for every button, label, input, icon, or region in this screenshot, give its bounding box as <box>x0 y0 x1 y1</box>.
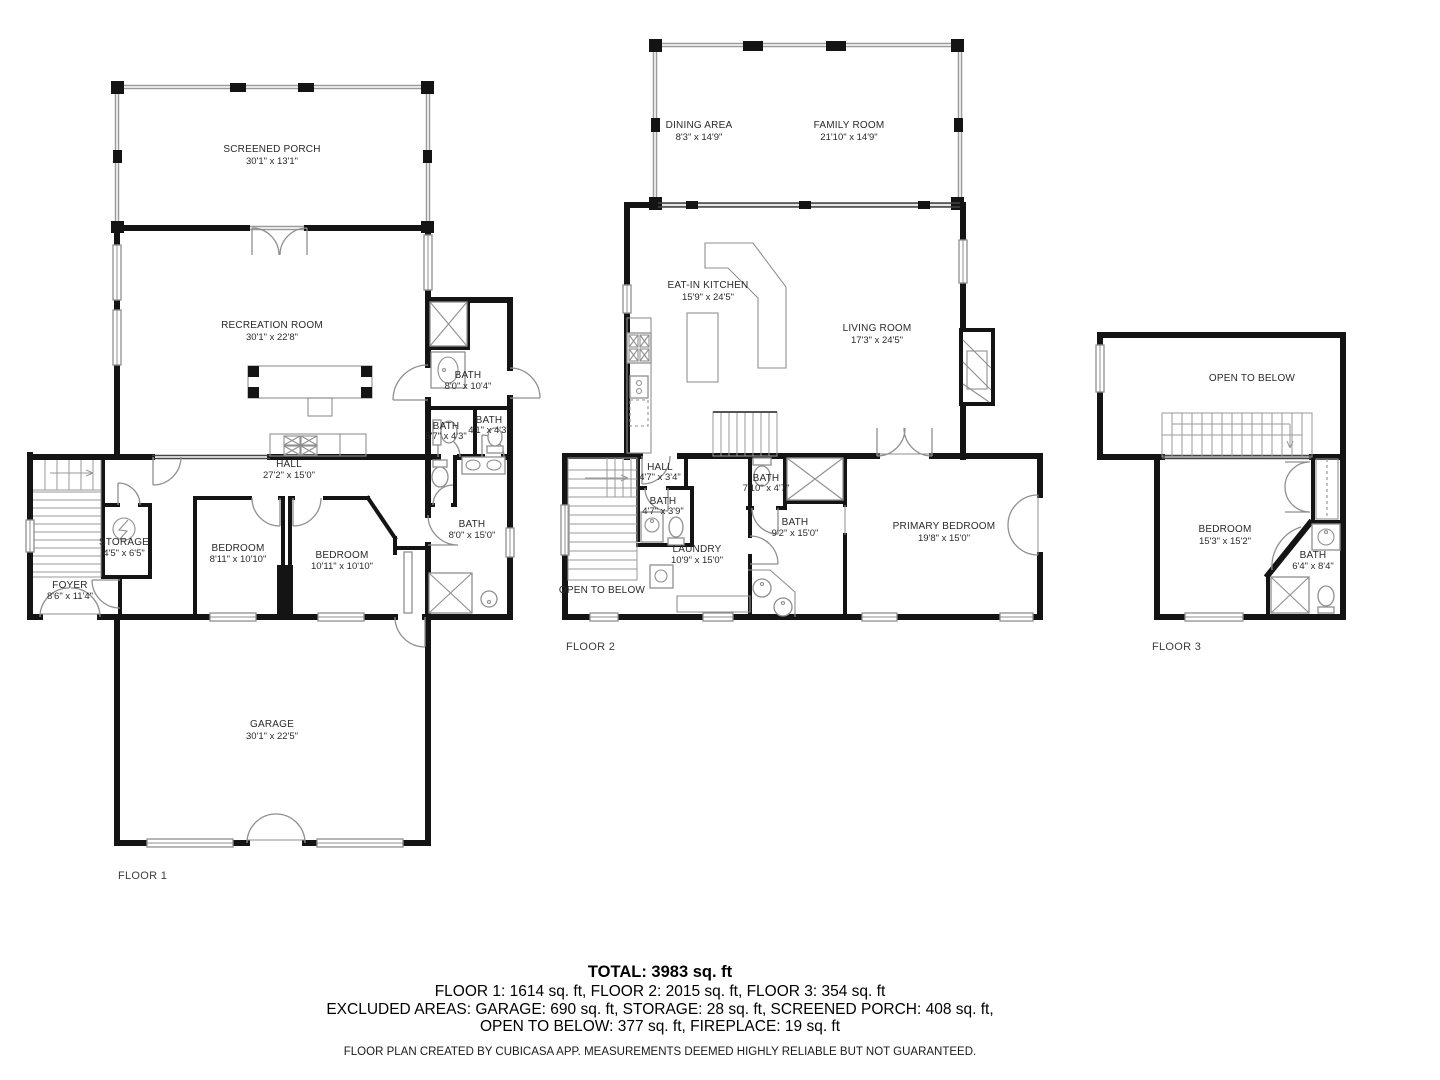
room-label-bath-large-f2: BATH <box>782 517 809 528</box>
room-label-open-to-below-f2: OPEN TO BELOW <box>559 585 646 596</box>
room-label-foyer: FOYER <box>52 580 87 591</box>
floor3-label: FLOOR 3 <box>1152 641 1201 653</box>
room-dims-bath-large-f2: 9'2" x 15'0" <box>772 528 819 539</box>
room-dims-bath-small-right: 4'1" x 4'3" <box>468 425 510 436</box>
room-label-garage: GARAGE <box>250 719 294 730</box>
room-dims-family-room: 21'10" x 14'9" <box>820 132 877 143</box>
closet-sliding-door <box>404 552 412 613</box>
room-dims-hall-f2: 4'7" x 3'4" <box>639 472 681 483</box>
room-label-bath-lower: BATH <box>459 519 486 530</box>
room-dims-living-room: 17'3" x 24'5" <box>851 335 903 346</box>
pool-table <box>248 366 372 398</box>
room-dims-bedroom-left: 8'11" x 10'10" <box>210 554 267 565</box>
sink-icon <box>774 598 792 616</box>
floor3-stairs <box>1162 413 1312 457</box>
floor1-label: FLOOR 1 <box>118 870 167 882</box>
room-dims-bath-small-left: 5'7" x 4'3" <box>425 431 467 442</box>
room-label-bath-upper: BATH <box>455 370 482 381</box>
room-dims-bath-hall-f2: 4'7" x 3'9" <box>642 506 684 517</box>
dishwasher-icon <box>630 400 648 426</box>
foyer-stairs <box>33 460 101 577</box>
sink-icon <box>481 591 497 607</box>
room-label-primary-bedroom: PRIMARY BEDROOM <box>893 521 996 532</box>
fireplace-icon <box>961 330 993 404</box>
room-label-storage: STORAGE <box>99 537 149 548</box>
room-dims-eat-in-kitchen: 15'9" x 24'5" <box>682 292 734 303</box>
summary-excluded-2: OPEN TO BELOW: 377 sq. ft, FIREPLACE: 19… <box>480 1018 841 1035</box>
room-dims-hall-f1: 27'2" x 15'0" <box>263 470 315 481</box>
room-label-bath-f3: BATH <box>1300 550 1327 561</box>
room-label-laundry: LAUNDRY <box>672 544 721 555</box>
room-dims-dining-area: 8'3" x 14'9" <box>676 132 723 143</box>
room-dims-primary-bedroom: 19'8" x 15'0" <box>918 533 970 544</box>
summary-block: TOTAL: 3983 sq. ft FLOOR 1: 1614 sq. ft,… <box>326 963 993 1058</box>
room-dims-foyer: 8'6" x 11'4" <box>47 591 93 602</box>
summary-disclaimer: FLOOR PLAN CREATED BY CUBICASA APP. MEAS… <box>344 1046 976 1058</box>
room-dims-bath-small-f2: 7'10" x 4'7" <box>743 483 790 494</box>
summary-excluded-1: EXCLUDED AREAS: GARAGE: 690 sq. ft, STOR… <box>326 1001 993 1018</box>
room-label-dining-area: DINING AREA <box>666 120 733 131</box>
toilet-icon <box>753 458 771 465</box>
toilet-icon <box>487 446 503 453</box>
sink-icon <box>753 579 771 597</box>
room-dims-storage: 4'5" x 6'5" <box>103 548 145 559</box>
room-dims-recreation-room: 30'1" x 22'8" <box>246 332 298 343</box>
room-dims-bath-f3: 6'4" x 8'4" <box>1292 561 1334 572</box>
room-dims-laundry: 10'9" x 15'0" <box>671 555 723 566</box>
room-label-bedroom-right: BEDROOM <box>315 550 368 561</box>
summary-total: TOTAL: 3983 sq. ft <box>588 963 733 981</box>
floor2-stairs-open-below <box>568 458 637 580</box>
room-label-open-to-below-f3: OPEN TO BELOW <box>1209 373 1296 384</box>
kitchen-island <box>687 313 718 382</box>
room-label-screened-porch: SCREENED PORCH <box>223 144 320 155</box>
washer-icon <box>650 565 673 588</box>
floor-plan-canvas: SCREENED PORCH 30'1" x 13'1" RECREATION … <box>0 0 1440 1080</box>
kitchen-bar-counter <box>705 243 786 368</box>
floor-plan-page: SCREENED PORCH 30'1" x 13'1" RECREATION … <box>0 0 1440 1080</box>
room-dims-bath-lower: 8'0" x 15'0" <box>449 530 496 541</box>
floor2-label: FLOOR 2 <box>566 641 615 653</box>
room-dims-bedroom-f3: 15'3" x 15'2" <box>1199 536 1251 547</box>
room-label-eat-in-kitchen: EAT-IN KITCHEN <box>668 280 749 291</box>
floor3-plan: OPEN TO BELOW BEDROOM 15'3" x 15'2" BATH… <box>1096 335 1343 653</box>
room-dims-screened-porch: 30'1" x 13'1" <box>246 156 298 167</box>
room-dims-bedroom-right: 10'11" x 10'10" <box>311 561 373 572</box>
floor2-stairs-up <box>713 412 777 456</box>
floor2-plan: DINING AREA 8'3" x 14'9" FAMILY ROOM 21'… <box>559 39 1040 653</box>
laundry-counter <box>677 596 750 612</box>
sink-icon <box>1312 524 1340 550</box>
room-label-family-room: FAMILY ROOM <box>814 120 885 131</box>
toilet-icon <box>433 460 447 467</box>
room-dims-garage: 30'1" x 22'5" <box>246 731 298 742</box>
summary-floors: FLOOR 1: 1614 sq. ft, FLOOR 2: 2015 sq. … <box>435 983 886 1000</box>
kitchen-sink-icon <box>630 376 648 398</box>
room-label-bedroom-f3: BEDROOM <box>1198 524 1251 535</box>
room-label-living-room: LIVING ROOM <box>843 323 912 334</box>
chimney <box>277 565 293 617</box>
room-label-recreation-room: RECREATION ROOM <box>221 320 323 331</box>
room-dims-bath-upper: 8'0" x 10'4" <box>445 381 492 392</box>
floor1-plan: SCREENED PORCH 30'1" x 13'1" RECREATION … <box>26 81 540 882</box>
double-sink-icon <box>462 457 505 474</box>
room-label-bedroom-left: BEDROOM <box>211 543 264 554</box>
toilet-icon <box>1318 586 1334 606</box>
room-label-hall-f1: HALL <box>276 459 302 470</box>
